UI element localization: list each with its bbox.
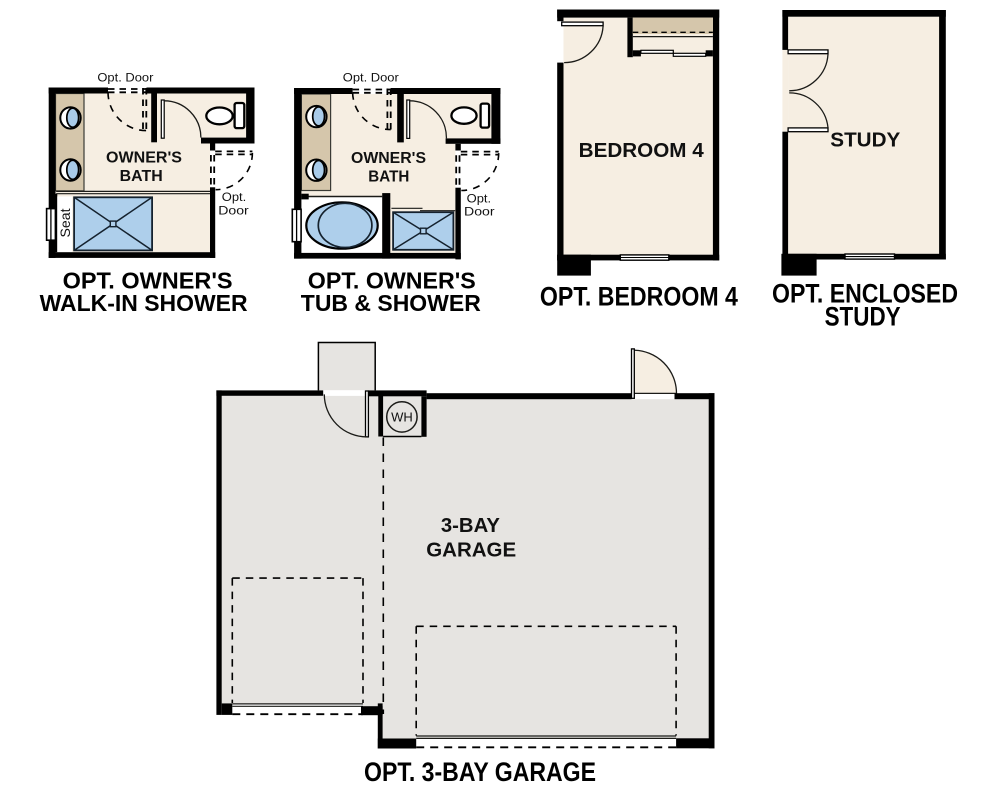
- svg-text:TUB & SHOWER: TUB & SHOWER: [301, 290, 481, 316]
- svg-text:Opt.: Opt.: [222, 190, 247, 204]
- svg-text:Door: Door: [464, 205, 495, 219]
- svg-text:Door: Door: [218, 204, 249, 218]
- svg-text:BATH: BATH: [120, 168, 163, 185]
- svg-text:WH: WH: [391, 410, 413, 425]
- svg-text:Seat: Seat: [57, 208, 73, 237]
- svg-text:STUDY: STUDY: [830, 129, 900, 152]
- svg-text:OPT. BEDROOM 4: OPT. BEDROOM 4: [540, 282, 738, 312]
- svg-text:Opt. Door: Opt. Door: [97, 70, 153, 84]
- svg-text:GARAGE: GARAGE: [426, 539, 516, 562]
- svg-text:3-BAY: 3-BAY: [441, 514, 500, 537]
- svg-text:BATH: BATH: [368, 168, 409, 185]
- svg-text:Opt.: Opt.: [467, 191, 492, 205]
- svg-text:OWNER'S: OWNER'S: [351, 150, 426, 167]
- svg-text:Opt. Door: Opt. Door: [343, 70, 399, 84]
- svg-text:STUDY: STUDY: [825, 301, 901, 331]
- svg-text:BEDROOM 4: BEDROOM 4: [579, 140, 705, 162]
- svg-text:OPT. 3-BAY GARAGE: OPT. 3-BAY GARAGE: [364, 757, 596, 787]
- svg-text:OWNER'S: OWNER'S: [106, 149, 182, 166]
- svg-text:WALK-IN SHOWER: WALK-IN SHOWER: [40, 290, 248, 316]
